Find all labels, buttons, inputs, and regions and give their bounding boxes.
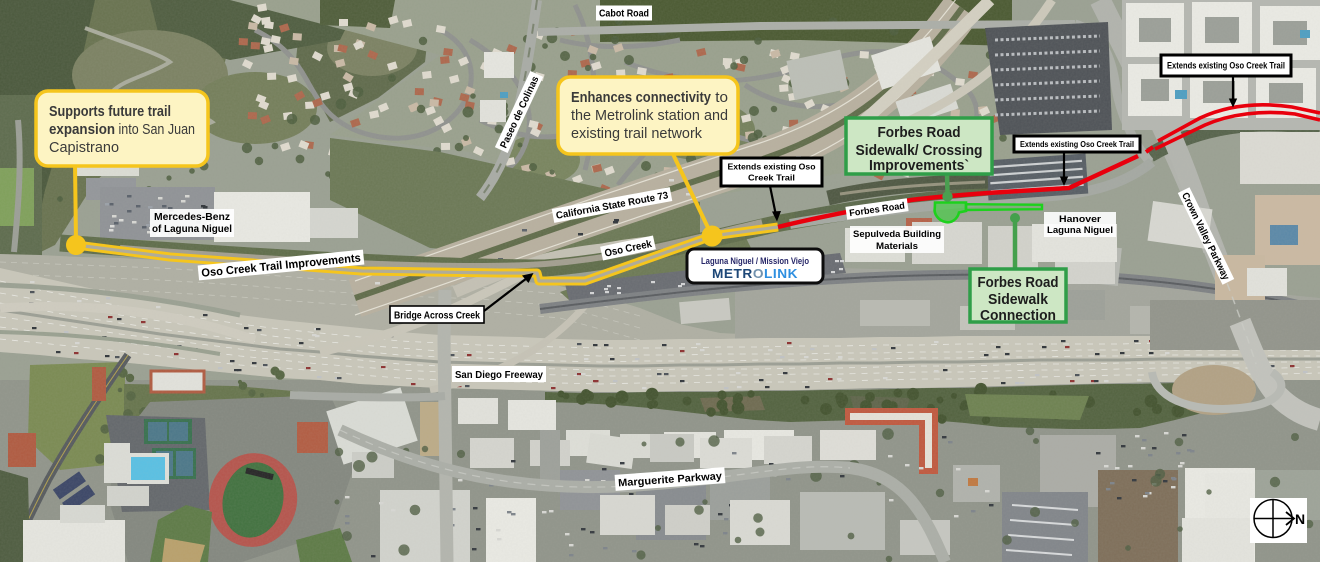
svg-text:Sepulveda Building: Sepulveda Building xyxy=(853,229,941,240)
svg-text:Extends existing Oso Creek Tra: Extends existing Oso Creek Trail xyxy=(1020,139,1134,149)
svg-text:Hanover: Hanover xyxy=(1059,214,1101,225)
svg-text:Mercedes-Benz: Mercedes-Benz xyxy=(154,212,230,223)
svg-text:the Metrolink station and: the Metrolink station and xyxy=(571,108,728,124)
svg-text:Laguna Niguel: Laguna Niguel xyxy=(1047,225,1113,236)
svg-text:Bridge Across Creek: Bridge Across Creek xyxy=(394,310,480,322)
svg-text:Laguna Niguel / Mission Viejo: Laguna Niguel / Mission Viejo xyxy=(701,256,809,266)
svg-text:Forbes Road: Forbes Road xyxy=(978,275,1059,291)
svg-text:Capistrano: Capistrano xyxy=(49,140,119,156)
svg-text:Sidewalk: Sidewalk xyxy=(988,292,1049,308)
svg-text:Forbes Road: Forbes Road xyxy=(878,124,961,141)
svg-text:Enhances connectivity to: Enhances connectivity to xyxy=(571,90,728,106)
svg-text:Materials: Materials xyxy=(876,241,918,252)
svg-text:Extends existing Oso: Extends existing Oso xyxy=(728,162,816,172)
svg-text:N: N xyxy=(1295,511,1305,527)
svg-text:Creek Trail: Creek Trail xyxy=(748,173,795,183)
svg-text:expansion into San Juan: expansion into San Juan xyxy=(49,122,195,138)
svg-text:Connection: Connection xyxy=(980,308,1056,324)
svg-text:Extends existing Oso Creek Tra: Extends existing Oso Creek Trail xyxy=(1167,61,1285,71)
svg-text:San Diego Freeway: San Diego Freeway xyxy=(455,369,543,381)
svg-text:Cabot Road: Cabot Road xyxy=(599,9,649,20)
svg-text:of Laguna Niguel: of Laguna Niguel xyxy=(152,224,232,235)
svg-text:METROLINK: METROLINK xyxy=(712,266,798,281)
svg-text:Improvements`: Improvements` xyxy=(869,157,969,174)
svg-text:existing trail network: existing trail network xyxy=(571,126,703,142)
svg-text:Supports future trail: Supports future trail xyxy=(49,104,171,120)
